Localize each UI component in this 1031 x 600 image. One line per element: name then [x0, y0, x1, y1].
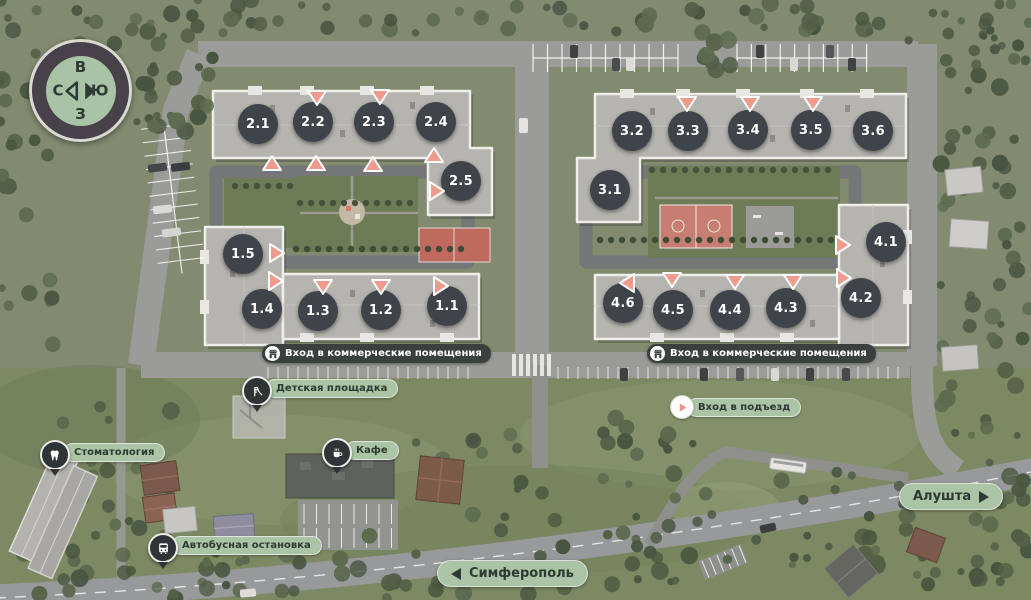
poi-label: Детская площадка: [265, 379, 398, 398]
entrance-triangle-icon: [370, 88, 391, 106]
road-sign-alushta: Алушта: [899, 483, 1003, 510]
building-marker-2.4[interactable]: 2.4: [416, 102, 456, 142]
entrance-triangle-icon: [268, 243, 286, 264]
entrance-triangle-icon: [834, 235, 852, 256]
entrance-triangle-icon: [618, 273, 636, 294]
road-sign-simferopol: Симферополь: [437, 560, 588, 587]
entrance-triangle-icon: [363, 155, 384, 173]
commercial-entrance-label: Вход в коммерческие помещения: [285, 348, 482, 359]
building-marker-2.2[interactable]: 2.2: [293, 102, 333, 142]
entrance-triangle-icon: [725, 273, 746, 291]
entrance-triangle-icon: [432, 276, 450, 297]
commercial-entrance-badge: Вход в коммерческие помещения: [262, 344, 491, 363]
building-marker-1.2[interactable]: 1.2: [361, 290, 401, 330]
arrow-right-icon: [979, 491, 989, 503]
building-marker-4.5[interactable]: 4.5: [653, 290, 693, 330]
slide-icon: [242, 376, 272, 406]
entrance-triangle-icon: [740, 95, 761, 113]
storefront-icon: [265, 346, 280, 361]
building-marker-4.4[interactable]: 4.4: [710, 290, 750, 330]
building-marker-3.5[interactable]: 3.5: [791, 110, 831, 150]
entrance-triangle-icon: [424, 146, 445, 164]
entrance-triangle-icon: [313, 278, 334, 296]
entrance-triangle-icon: [306, 154, 327, 172]
entrance-triangle-icon: [783, 273, 804, 291]
building-marker-3.1[interactable]: 3.1: [590, 170, 630, 210]
storefront-icon: [650, 346, 665, 361]
poi-label: Автобусная остановка: [171, 536, 322, 555]
arrow-left-icon: [451, 568, 461, 580]
commercial-entrance-label: Вход в коммерческие помещения: [670, 348, 867, 359]
building-marker-3.3[interactable]: 3.3: [668, 111, 708, 151]
entrance-triangle-icon: [670, 395, 694, 419]
entrance-triangle-icon: [803, 95, 824, 113]
building-marker-1.5[interactable]: 1.5: [223, 234, 263, 274]
entrance-triangle-icon: [307, 89, 328, 107]
building-marker-1.3[interactable]: 1.3: [298, 291, 338, 331]
road-sign-label: Алушта: [913, 489, 971, 504]
entrance-triangle-icon: [267, 271, 285, 292]
poi-label: Кафе: [345, 441, 399, 460]
building-marker-3.2[interactable]: 3.2: [612, 111, 652, 151]
entrance-triangle-icon: [262, 154, 283, 172]
building-marker-2.5[interactable]: 2.5: [441, 161, 481, 201]
road-sign-label: Симферополь: [469, 566, 574, 581]
tooth-icon: [40, 440, 70, 470]
poi-pin: Стоматология: [40, 440, 165, 470]
poi-label: Вход в подъезд: [687, 398, 801, 417]
site-plan: В С Ю З 2.12.22.32.42.53.13.23.33.43.53.…: [0, 0, 1031, 600]
building-marker-2.3[interactable]: 2.3: [354, 102, 394, 142]
poi-badge: Вход в подъезд: [670, 395, 801, 419]
building-marker-4.3[interactable]: 4.3: [766, 288, 806, 328]
entrance-triangle-icon: [662, 271, 683, 289]
coffee-cup-icon: [322, 438, 352, 468]
entrance-triangle-icon: [677, 95, 698, 113]
entrance-triangle-icon: [371, 278, 392, 296]
bus-icon: [148, 533, 178, 563]
entrance-triangle-icon: [428, 181, 446, 202]
poi-pin: Кафе: [322, 438, 399, 468]
building-marker-3.6[interactable]: 3.6: [853, 111, 893, 151]
commercial-entrance-badge: Вход в коммерческие помещения: [647, 344, 876, 363]
building-marker-4.1[interactable]: 4.1: [866, 222, 906, 262]
poi-pin: Детская площадка: [242, 376, 398, 406]
building-marker-1.4[interactable]: 1.4: [242, 289, 282, 329]
building-marker-3.4[interactable]: 3.4: [728, 110, 768, 150]
poi-label: Стоматология: [63, 443, 165, 462]
entrance-triangle-icon: [835, 268, 853, 289]
poi-pin: Автобусная остановка: [148, 533, 322, 563]
building-marker-2.1[interactable]: 2.1: [238, 104, 278, 144]
